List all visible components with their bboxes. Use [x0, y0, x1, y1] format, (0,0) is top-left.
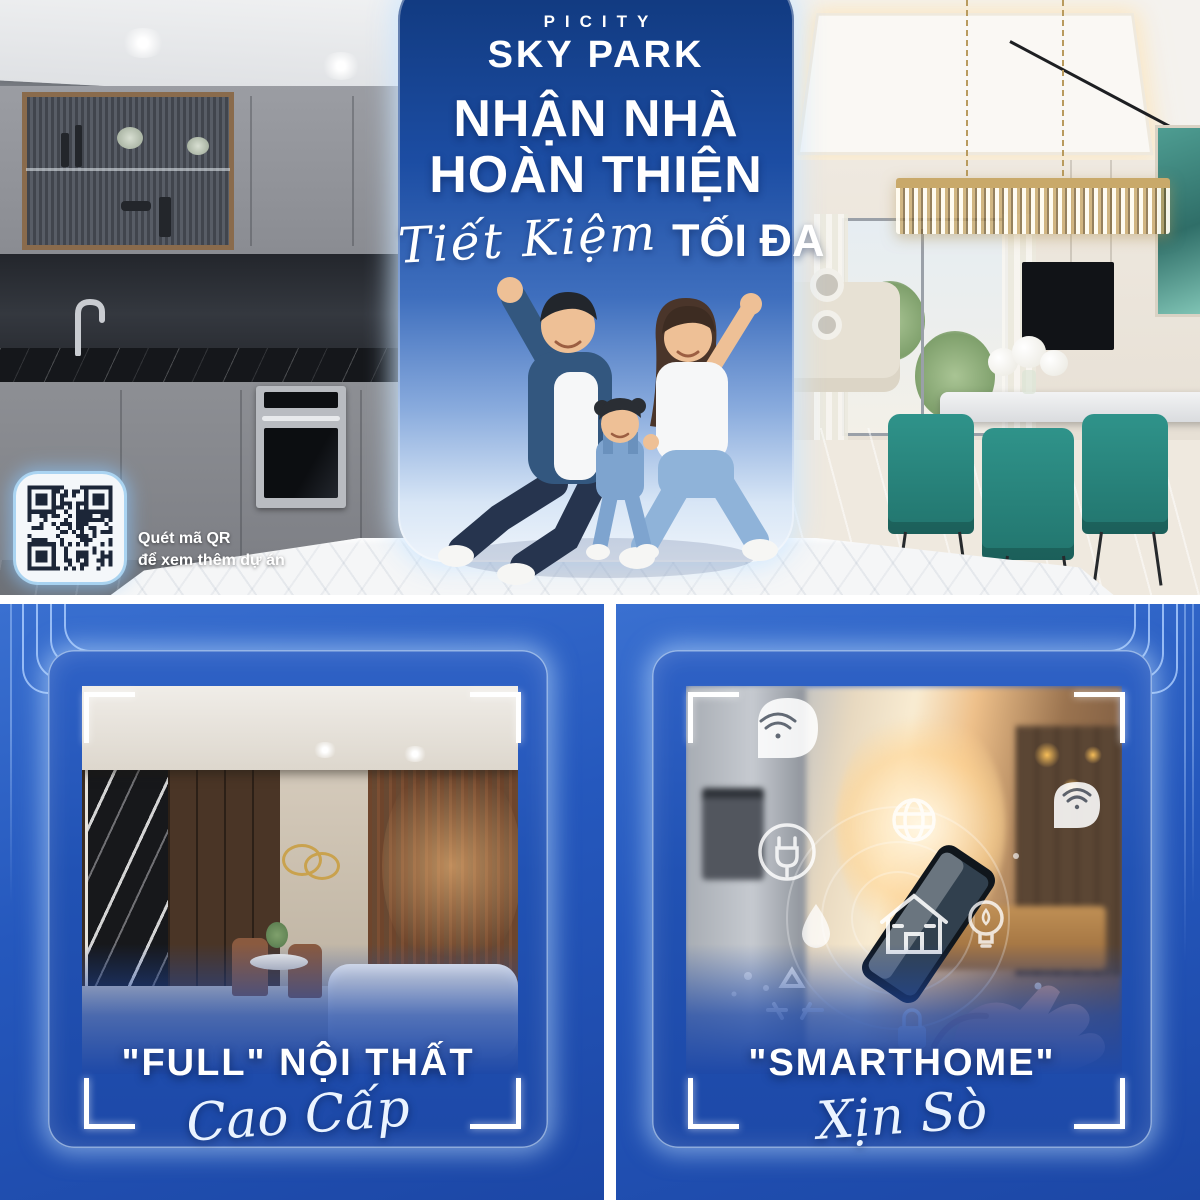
display-cabinet [22, 92, 234, 250]
cabinet-seam [360, 390, 362, 560]
plant [117, 127, 143, 149]
cabinet-seam [352, 96, 354, 246]
cabinet-seam [250, 96, 252, 246]
crystal-chandelier [896, 178, 1170, 234]
faucet [64, 296, 120, 356]
chandelier-chain [966, 0, 968, 182]
bokeh-light [1034, 742, 1060, 768]
qr-caption: Quét mã QR để xem thêm dự án [138, 528, 348, 572]
banner-text: PICITY SKY PARK NHẬN NHÀ HOÀN THIỆN Tiết… [398, 0, 794, 300]
frame-bracket [470, 692, 521, 743]
circuit-trace [64, 604, 254, 652]
headline-line1: NHẬN NHÀ [398, 91, 794, 147]
smarthome-panel: "SMARTHOME" Xịn Sò [616, 604, 1200, 1200]
bloom [1040, 350, 1068, 376]
qr-caption-line1: Quét mã QR [138, 528, 348, 550]
window-mullion [921, 229, 924, 431]
brand-top-label: PICITY [398, 12, 794, 32]
circuit-line [1184, 604, 1186, 964]
circuit-line [10, 604, 12, 904]
interior-photo [82, 686, 518, 1074]
wall-speaker [810, 268, 844, 302]
oven-handle [262, 416, 340, 421]
chandelier-ring [304, 852, 340, 880]
bottle [61, 133, 69, 167]
ceiling-spotlight [402, 746, 428, 762]
dishes [121, 201, 151, 211]
dining-chair [982, 428, 1074, 560]
living-room-photo [770, 0, 1200, 595]
frame-bracket [688, 692, 739, 743]
dining-chair [888, 414, 974, 534]
vase [1022, 370, 1036, 394]
oven-control-panel [264, 392, 338, 408]
wall-speaker [812, 310, 842, 340]
poster: PICITY SKY PARK NHẬN NHÀ HOÀN THIỆN Tiết… [0, 0, 1200, 1200]
headline-line2: HOÀN THIỆN [398, 147, 794, 203]
tagline: Tiết Kiệm TỐI ĐA [398, 211, 794, 268]
bottle [75, 125, 82, 167]
ceiling-spotlight [312, 742, 338, 758]
frame-bracket [84, 692, 135, 743]
interior-panel: "FULL" NỘI THẤT Cao Cấp [0, 604, 604, 1200]
circuit-trace [946, 604, 1136, 652]
bokeh-light [1084, 746, 1102, 764]
qr-group: Quét mã QR để xem thêm dự án [16, 474, 346, 590]
ceiling-spotlight [320, 52, 362, 80]
warm-light-glow [382, 756, 518, 976]
qr-code-svg [24, 482, 116, 574]
vase [159, 197, 171, 237]
smarthome-photo [686, 686, 1122, 1074]
plant [187, 137, 209, 155]
frame-bracket [1074, 692, 1125, 743]
qr-caption-line2: để xem thêm dự án [138, 550, 348, 572]
circuit-line [1192, 604, 1194, 904]
brand-name: SKY PARK [398, 34, 794, 77]
ceiling-cove [800, 16, 1150, 152]
top-banner: PICITY SKY PARK NHẬN NHÀ HOÀN THIỆN Tiết… [0, 0, 1200, 595]
interior-card: "FULL" NỘI THẤT Cao Cấp [48, 650, 548, 1148]
glass-shelf [26, 168, 230, 171]
smarthome-card: "SMARTHOME" Xịn Sò [652, 650, 1152, 1148]
fridge-dispenser [702, 788, 764, 880]
chandelier-chain [1062, 0, 1064, 182]
ceiling-spotlight [120, 28, 166, 58]
qr-code [16, 474, 124, 582]
dining-chair [1082, 414, 1168, 534]
bokeh-light [1062, 778, 1082, 798]
tagline-strong: TỐI ĐA [672, 215, 825, 266]
tagline-script: Tiết Kiệm [397, 204, 659, 275]
